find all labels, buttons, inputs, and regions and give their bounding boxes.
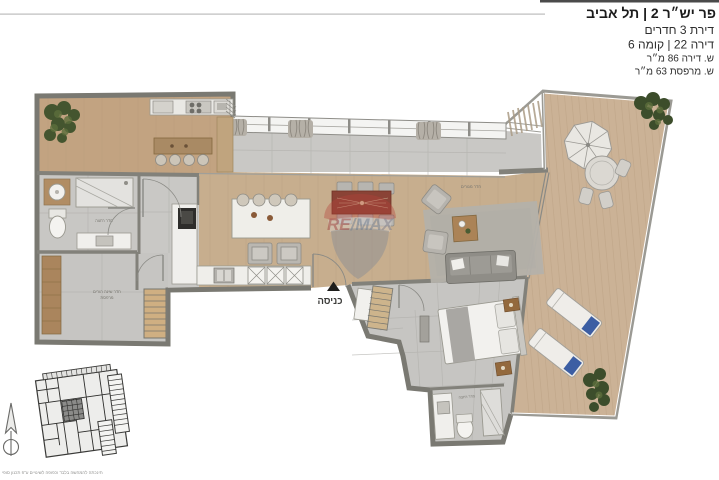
svg-text:דירה 22 | קומה 6: דירה 22 | קומה 6 [628,38,714,52]
svg-text:RE/MAX: RE/MAX [327,215,395,234]
svg-text:כניסה: כניסה [318,296,343,307]
svg-text:דירת 3 חדרים: דירת 3 חדרים [645,23,715,37]
svg-text:חדר רחצה: חדר רחצה [95,218,113,223]
svg-text:ש. דירה 86 מ״ר: ש. דירה 86 מ״ר [647,54,714,65]
svg-text:מרפסת: מרפסת [100,295,113,300]
svg-text:תינכתה להמחשה בלבד וכפופה לשינ: תינכתה להמחשה בלבד וכפופה לשינויים ע"פ ת… [2,470,103,475]
svg-text:חדר מגורים: חדר מגורים [461,184,482,189]
svg-text:ש. מרפסת 63 מ״ר: ש. מרפסת 63 מ״ר [635,67,714,78]
svg-text:חדר שינה הורים: חדר שינה הורים [93,289,121,294]
svg-text:פר יש״ר 2 | תל אביב: פר יש״ר 2 | תל אביב [586,5,716,21]
